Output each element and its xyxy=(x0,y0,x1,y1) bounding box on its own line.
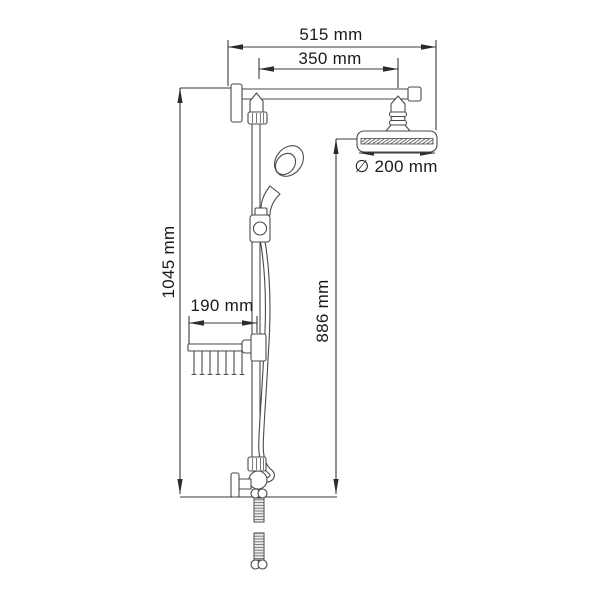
flexible-connection-hose xyxy=(251,498,267,569)
dim-label-total-height: 1045 mm xyxy=(159,226,179,299)
dim-label-basket-width: 190 mm xyxy=(190,296,253,316)
bottom-outlet-assembly xyxy=(231,457,267,498)
dim-label-total-width: 515 mm xyxy=(299,25,362,45)
technical-drawing-canvas xyxy=(0,0,600,600)
riser-rail xyxy=(252,99,260,458)
shower-arm xyxy=(242,87,421,101)
hand-shower xyxy=(261,140,310,215)
dim-label-arm-span: 350 mm xyxy=(298,49,361,69)
hand-shower-slider-holder xyxy=(250,208,270,242)
overhead-rain-shower xyxy=(357,131,437,152)
soap-basket xyxy=(188,334,266,375)
shower-system-technical-drawing: 515 mm 350 mm ∅ 200 mm 1045 mm 886 mm 19… xyxy=(0,0,600,600)
head-connector xyxy=(386,96,410,131)
wall-bracket-stem xyxy=(239,479,251,489)
dim-label-drop-height: 886 mm xyxy=(313,279,333,342)
dim-label-head-diameter: ∅ 200 mm xyxy=(354,157,437,177)
wall-mount-plate xyxy=(231,84,242,122)
dimension-drop-height xyxy=(333,139,357,494)
wall-bracket-flange xyxy=(231,473,239,497)
